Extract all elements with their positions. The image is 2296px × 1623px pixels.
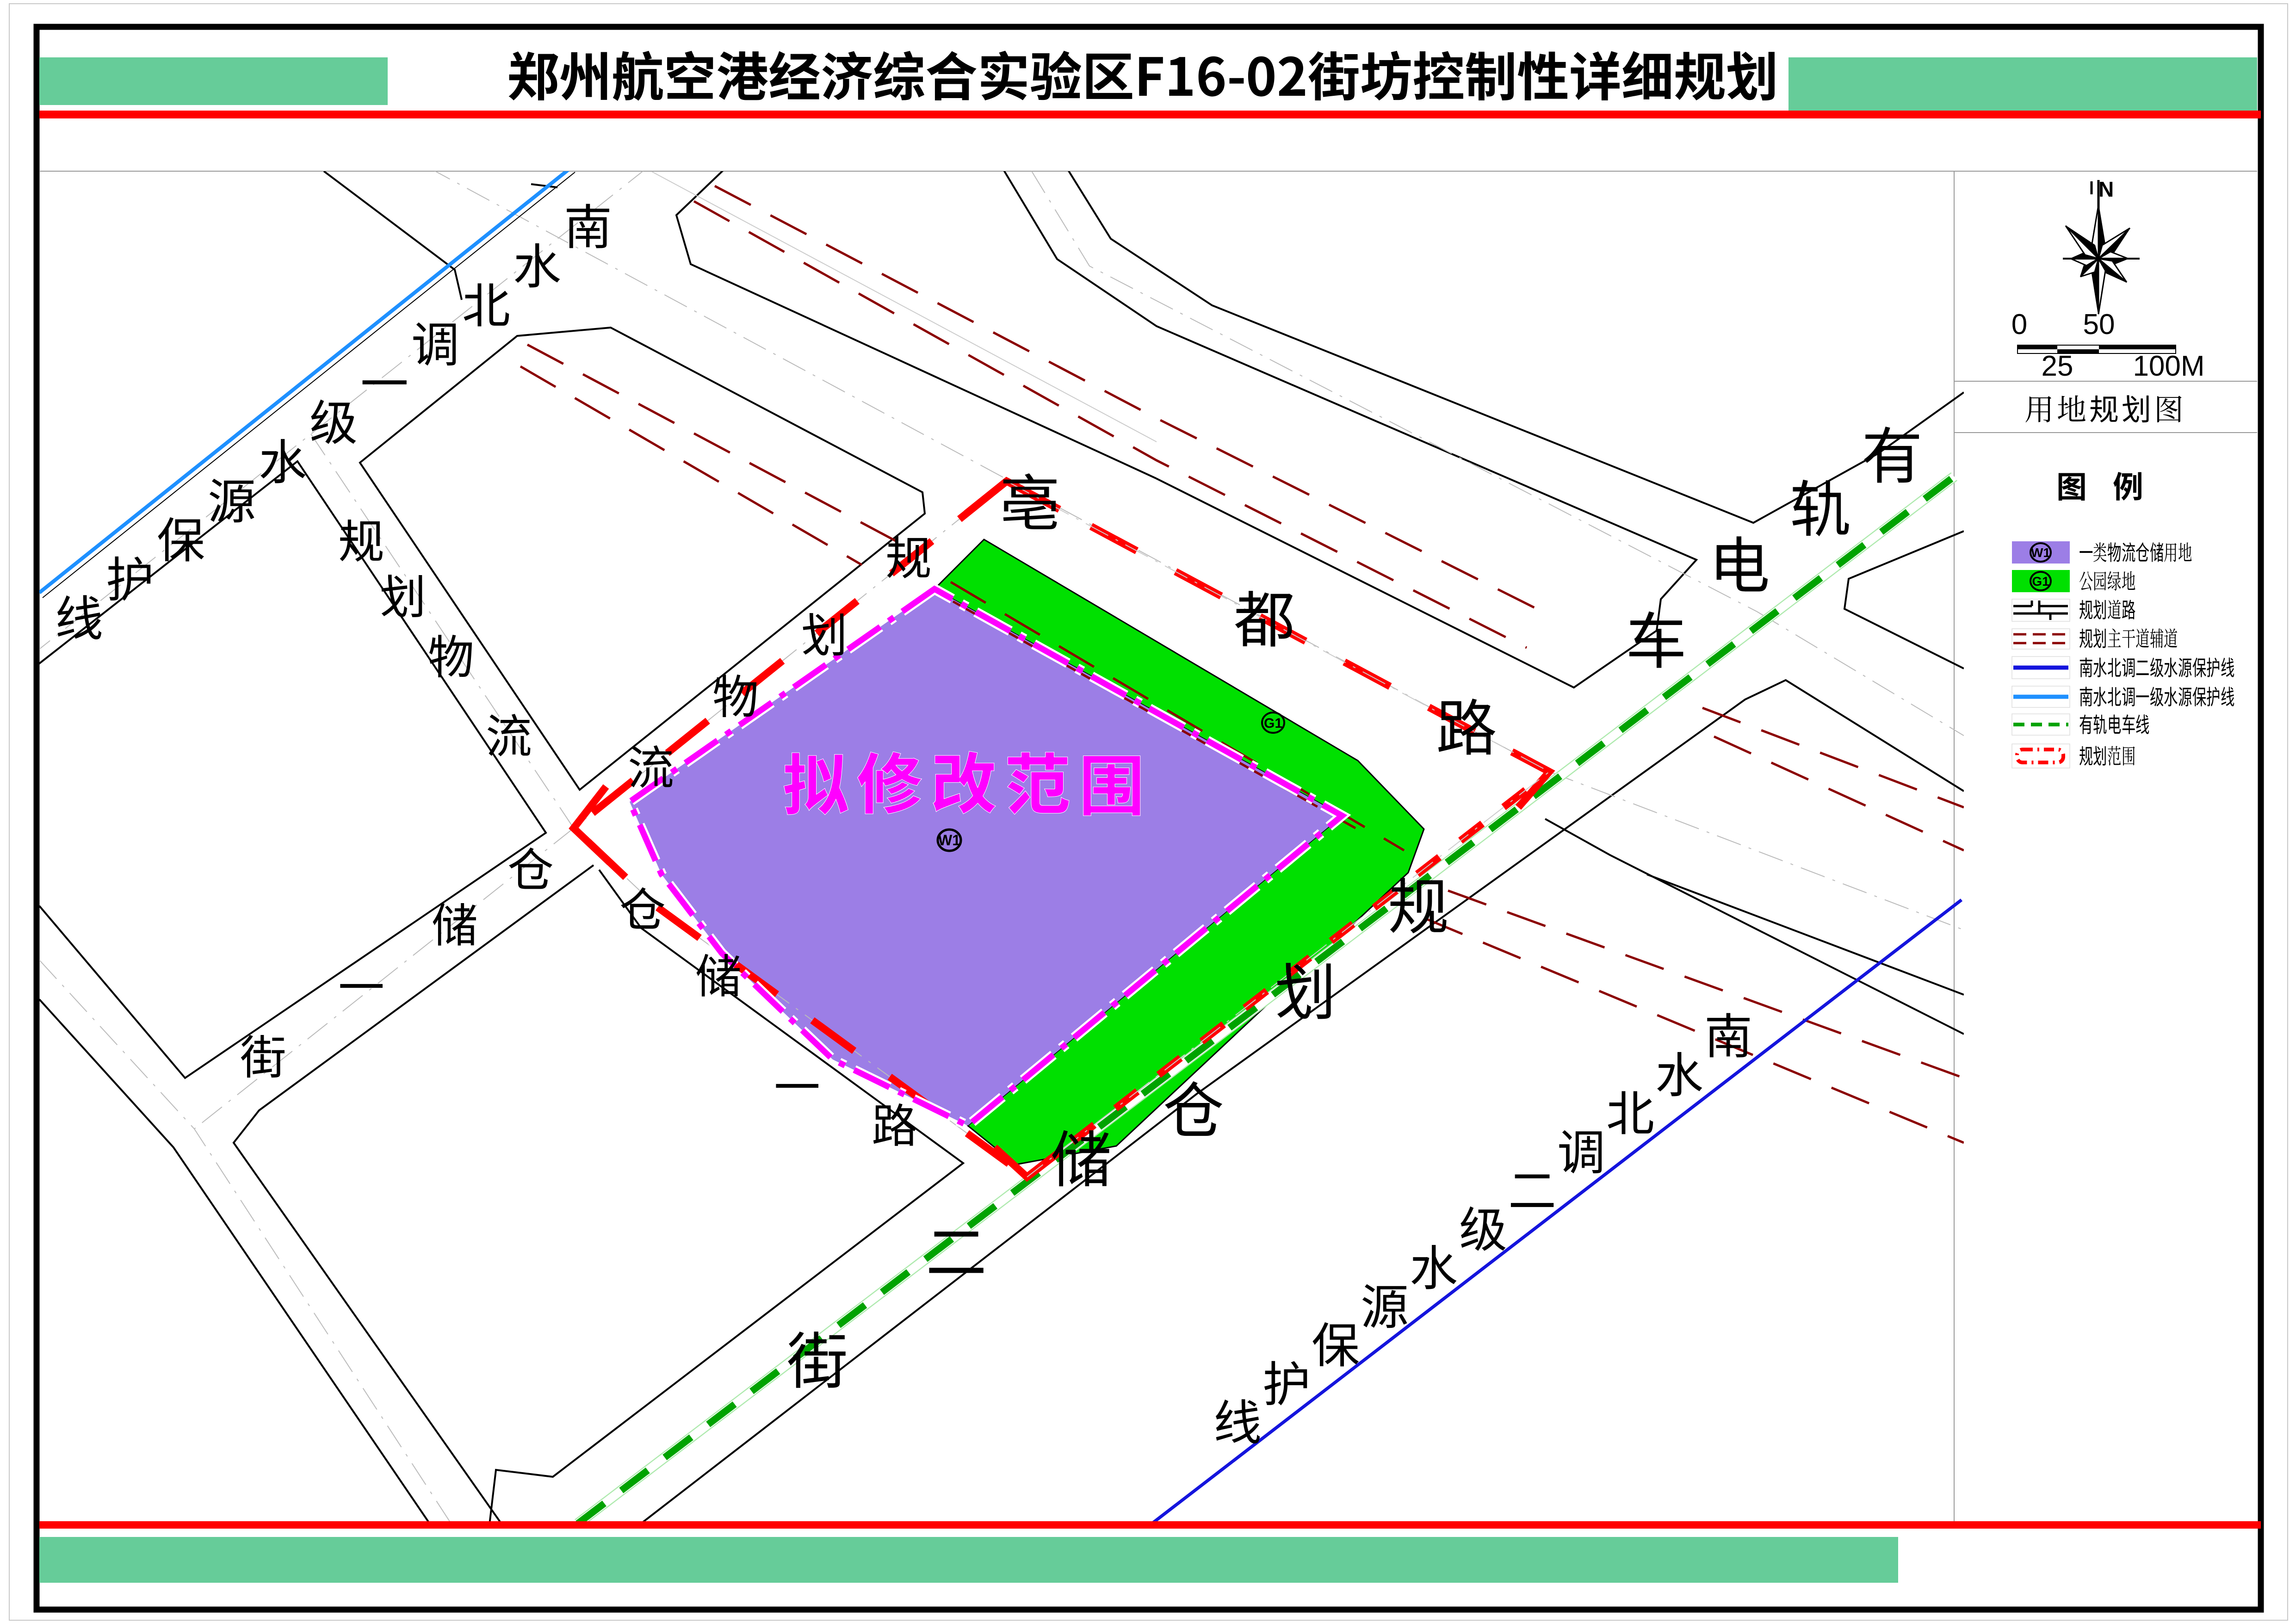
svg-text:25: 25: [2042, 350, 2073, 382]
svg-text:N: N: [2098, 177, 2114, 201]
svg-text:G1: G1: [2032, 574, 2049, 588]
svg-text:50: 50: [2083, 309, 2115, 341]
svg-text:G1: G1: [1264, 716, 1282, 731]
svg-text:W1: W1: [2031, 545, 2050, 560]
svg-text:0: 0: [2011, 309, 2027, 341]
svg-text:100M: 100M: [2133, 350, 2204, 382]
svg-text:W1: W1: [938, 832, 960, 849]
